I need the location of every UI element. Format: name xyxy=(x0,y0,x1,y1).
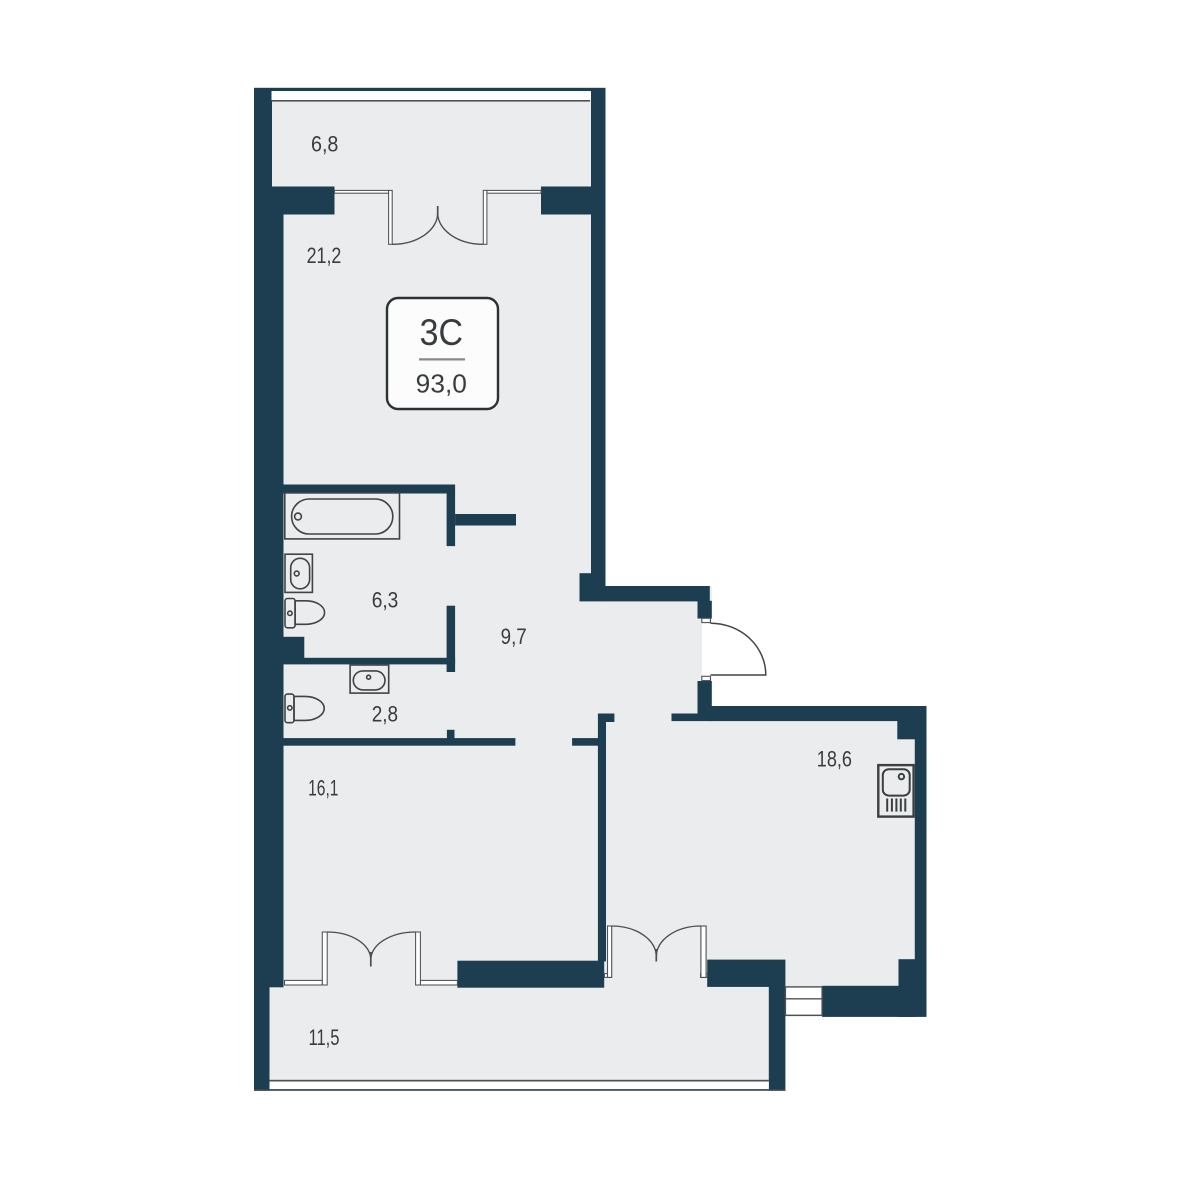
svg-text:93,0: 93,0 xyxy=(416,370,467,398)
svg-text:6,8: 6,8 xyxy=(311,131,338,156)
svg-text:21,2: 21,2 xyxy=(307,243,342,268)
svg-text:9,7: 9,7 xyxy=(501,624,527,649)
svg-text:16,1: 16,1 xyxy=(308,775,338,800)
svg-text:11,5: 11,5 xyxy=(308,1025,339,1050)
svg-text:18,6: 18,6 xyxy=(817,746,852,771)
svg-text:3C: 3C xyxy=(420,312,463,353)
svg-text:6,3: 6,3 xyxy=(372,588,399,613)
svg-text:2,8: 2,8 xyxy=(372,701,398,726)
